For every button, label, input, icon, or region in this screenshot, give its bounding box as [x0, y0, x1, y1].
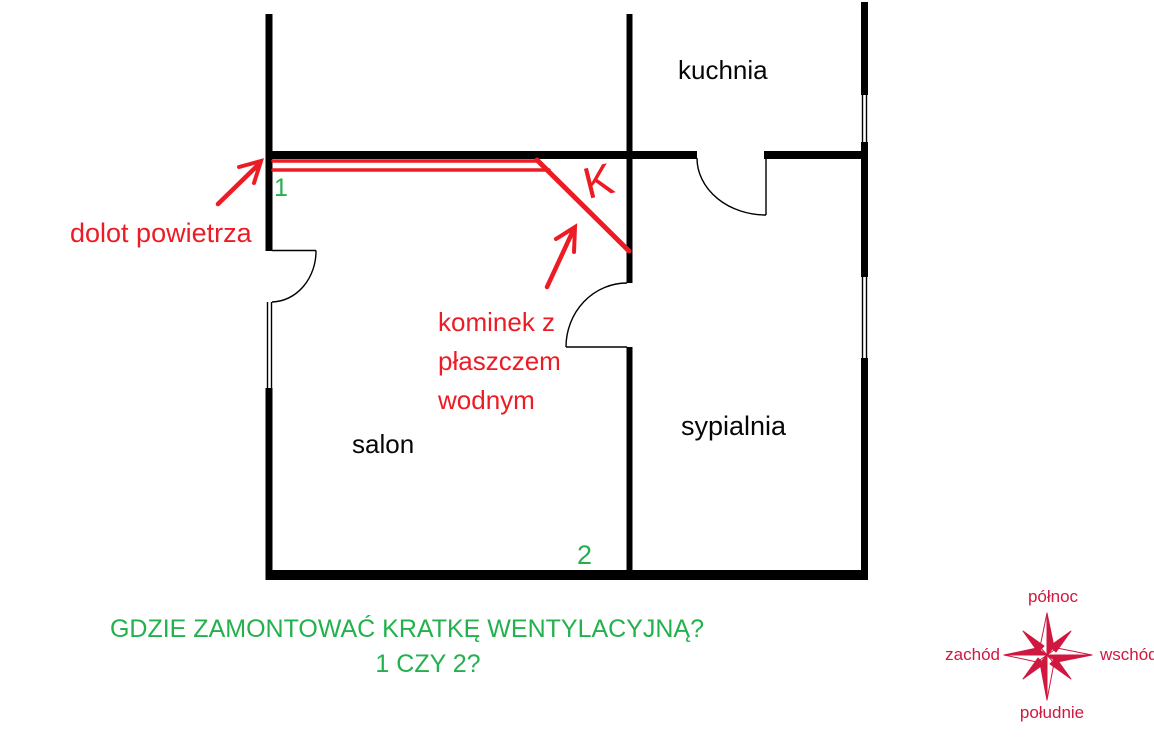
- air-inlet-arrow: [218, 161, 261, 204]
- walls: [266, 2, 869, 580]
- room-label-salon: salon: [352, 430, 414, 459]
- compass-label-west: zachód: [945, 645, 1000, 665]
- window-left-wall: [268, 302, 272, 388]
- wall-top-horizontal-right: [764, 151, 868, 159]
- air-inlet-label: dolot powietrza: [70, 219, 252, 249]
- fireplace-label: kominek z płaszczem wodnym: [438, 303, 561, 420]
- wall-bottom: [266, 570, 869, 580]
- compass-star: [1004, 613, 1092, 700]
- door-sypialnia: [566, 283, 627, 347]
- window-right-wall-lower: [863, 277, 867, 358]
- wall-middle-lower: [627, 347, 633, 580]
- question-block: GDZIE ZAMONTOWAĆ KRATKĘ WENTYLACYJNĄ? 1 …: [97, 612, 717, 682]
- compass-label-south: południe: [1020, 703, 1084, 723]
- compass-label-east: wschód: [1100, 645, 1154, 665]
- question-line-1: GDZIE ZAMONTOWAĆ KRATKĘ WENTYLACYJNĄ?: [97, 612, 717, 647]
- wall-middle-upper: [627, 14, 633, 283]
- compass-label-north: północ: [1028, 587, 1078, 607]
- room-label-kuchnia: kuchnia: [678, 56, 768, 85]
- window-right-wall-upper: [863, 95, 867, 142]
- fireplace-arrow: [547, 227, 575, 287]
- wall-left-upper: [266, 14, 273, 251]
- wall-top-horizontal-left: [266, 151, 698, 159]
- option-marker-2: 2: [577, 541, 592, 571]
- wall-left-lower: [266, 388, 273, 580]
- room-label-sypialnia: sypialnia: [681, 412, 786, 442]
- wall-right-mid: [861, 142, 868, 277]
- wall-right-top: [861, 2, 868, 95]
- door-salon-left: [272, 251, 316, 303]
- door-kuchnia: [697, 158, 766, 215]
- floor-plan-canvas: kuchnia salon sypialnia dolot powietrza …: [0, 0, 1154, 737]
- option-marker-1: 1: [274, 175, 288, 203]
- question-line-2: 1 CZY 2?: [97, 647, 717, 682]
- wall-right-bottom: [861, 358, 868, 580]
